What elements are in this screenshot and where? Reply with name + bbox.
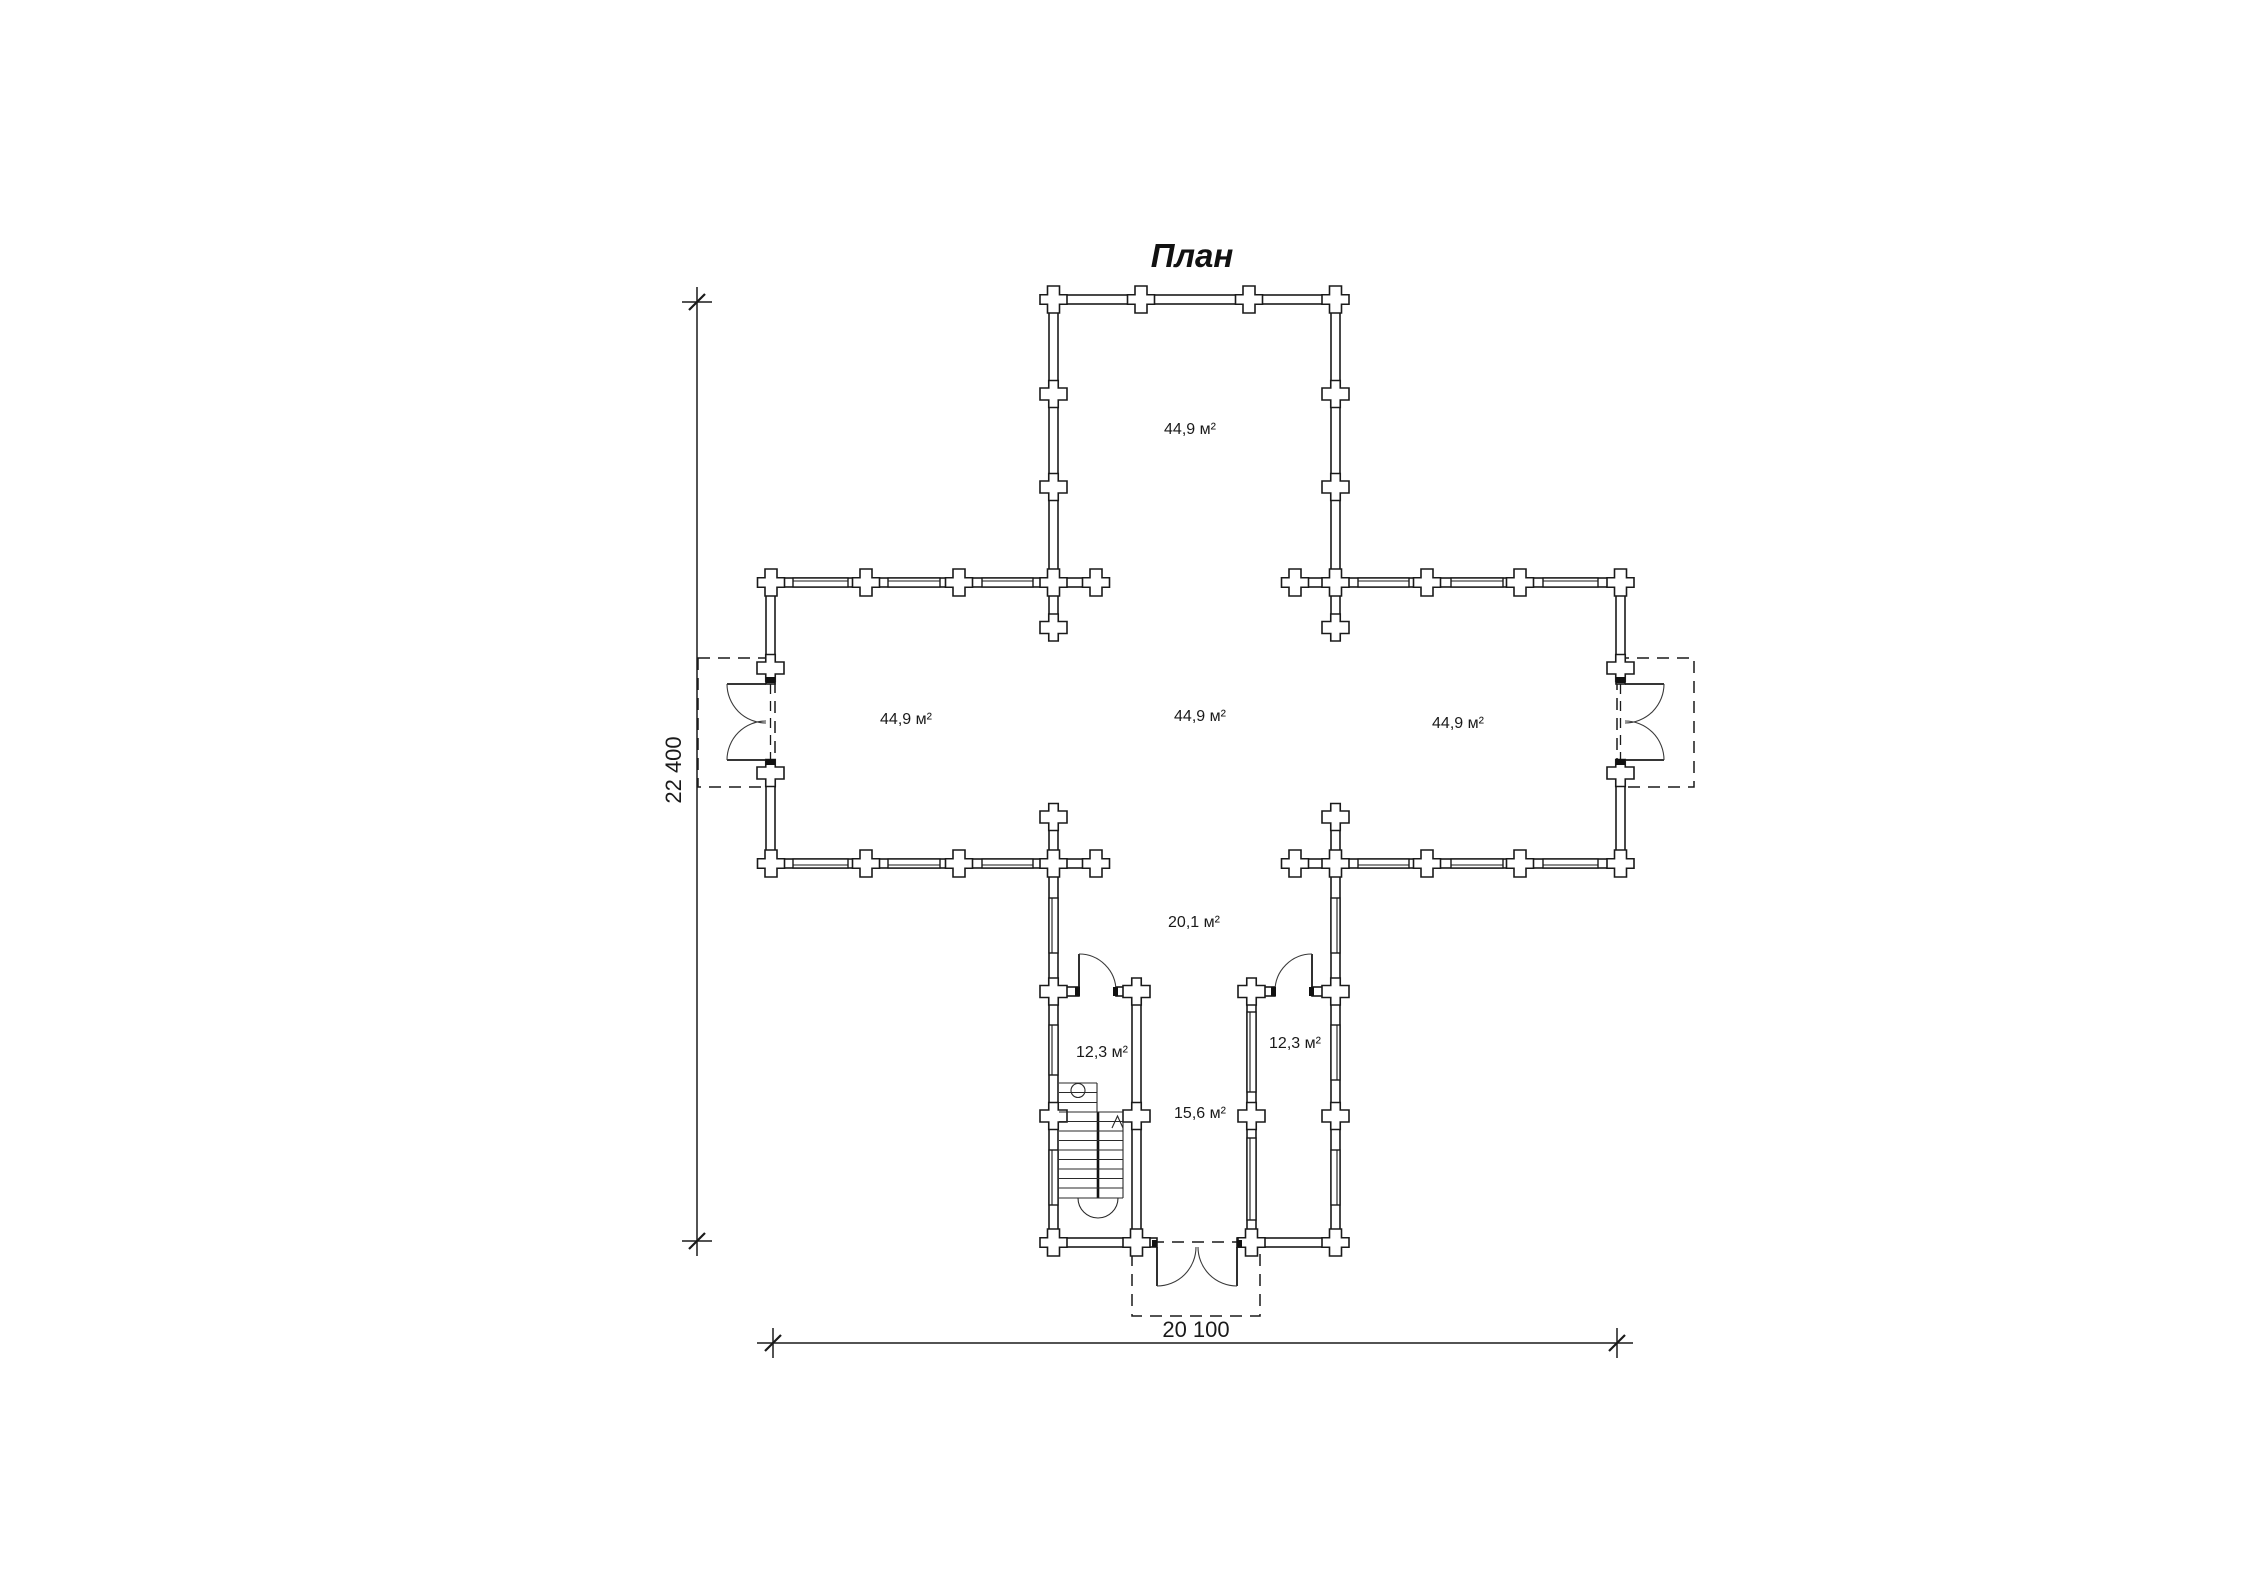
log-joint <box>1238 1229 1265 1256</box>
log-joint <box>946 850 973 877</box>
log-joint <box>1322 286 1349 313</box>
log-joint <box>1238 1103 1265 1130</box>
window <box>793 859 848 868</box>
window <box>888 578 940 587</box>
door-southwest-room <box>1075 954 1118 996</box>
room-label-vestibule: 15,6 м² <box>1174 1105 1227 1122</box>
log-joint <box>1123 1103 1150 1130</box>
windows <box>793 578 1598 1220</box>
log-joint <box>758 850 785 877</box>
window <box>1451 578 1503 587</box>
log-joint <box>1083 850 1110 877</box>
log-joint <box>1322 804 1349 831</box>
window <box>1543 578 1598 587</box>
staircase <box>1059 1083 1123 1218</box>
log-joint <box>1040 474 1067 501</box>
room-label-southwest-room: 12,3 м² <box>1076 1044 1129 1061</box>
floor-plan-sheet: 22 400 20 100 План 44,9 м² 44,9 м² 44,9 … <box>0 0 2245 1587</box>
wall-segment <box>1331 295 1340 587</box>
log-joint <box>1040 569 1067 596</box>
log-joint <box>1040 850 1067 877</box>
window <box>1049 1025 1058 1075</box>
log-joint <box>1507 850 1534 877</box>
window <box>1331 1150 1340 1205</box>
log-joint <box>853 850 880 877</box>
log-joint <box>1238 978 1265 1005</box>
log-joint <box>1040 1103 1067 1130</box>
dimension-lines: 22 400 20 100 <box>661 287 1633 1358</box>
window <box>1331 898 1340 953</box>
porches <box>698 658 1694 1316</box>
window <box>888 859 940 868</box>
log-joint <box>1128 286 1155 313</box>
log-joint <box>1322 381 1349 408</box>
window <box>1331 1025 1340 1080</box>
dimension-width-label: 20 100 <box>1162 1317 1229 1342</box>
window <box>1247 1012 1256 1092</box>
log-joint <box>1322 614 1349 641</box>
log-joint <box>1040 286 1067 313</box>
room-label-north-wing: 44,9 м² <box>1164 421 1217 438</box>
log-joint <box>1282 569 1309 596</box>
window <box>1358 578 1409 587</box>
window <box>982 859 1033 868</box>
log-joint <box>1322 474 1349 501</box>
window <box>1247 1138 1256 1220</box>
log-joint <box>758 569 785 596</box>
wall-segment <box>1049 295 1058 587</box>
window <box>1049 1150 1058 1205</box>
log-joint <box>1040 978 1067 1005</box>
window <box>982 578 1033 587</box>
log-joint <box>1040 804 1067 831</box>
room-label-east-wing: 44,9 м² <box>1432 715 1485 732</box>
room-label-west-wing: 44,9 м² <box>880 711 933 728</box>
room-label-central-hall: 44,9 м² <box>1174 708 1227 725</box>
log-joint <box>1083 569 1110 596</box>
log-joint <box>1507 569 1534 596</box>
stair-turn-arc <box>1078 1198 1118 1218</box>
door-east-double <box>1616 677 1664 765</box>
log-joint <box>946 569 973 596</box>
log-joint <box>1123 1229 1150 1256</box>
log-joint <box>1236 286 1263 313</box>
log-joint <box>1322 1103 1349 1130</box>
dimension-depth-label: 22 400 <box>661 736 686 803</box>
log-joint <box>1040 381 1067 408</box>
window <box>793 578 848 587</box>
log-joint <box>853 569 880 596</box>
log-joint <box>1040 1229 1067 1256</box>
log-joint <box>1414 569 1441 596</box>
log-joint <box>1123 978 1150 1005</box>
room-labels: План 44,9 м² 44,9 м² 44,9 м² 44,9 м² 20,… <box>880 237 1485 1122</box>
stair-newel-post <box>1071 1084 1085 1098</box>
doors <box>727 677 1664 1286</box>
window <box>1358 859 1409 868</box>
door-south-entrance <box>1152 1240 1242 1286</box>
log-joint <box>1040 614 1067 641</box>
window <box>1049 898 1058 953</box>
room-label-southeast-room: 12,3 м² <box>1269 1035 1322 1052</box>
dimension-horizontal: 20 100 <box>757 1317 1633 1358</box>
window <box>1451 859 1503 868</box>
dimension-vertical: 22 400 <box>661 287 712 1256</box>
log-joint <box>1607 850 1634 877</box>
log-joint <box>1607 569 1634 596</box>
door-west-double <box>727 677 775 765</box>
log-joint <box>1322 850 1349 877</box>
door-southeast-room <box>1271 954 1314 996</box>
window <box>1543 859 1598 868</box>
room-label-south-hall: 20,1 м² <box>1168 914 1221 931</box>
log-joint <box>1282 850 1309 877</box>
log-joint <box>1322 569 1349 596</box>
wall-segment <box>1049 295 1340 304</box>
plan-title: План <box>1151 237 1234 274</box>
log-joint <box>1414 850 1441 877</box>
log-joint <box>1322 978 1349 1005</box>
log-joint <box>1322 1229 1349 1256</box>
